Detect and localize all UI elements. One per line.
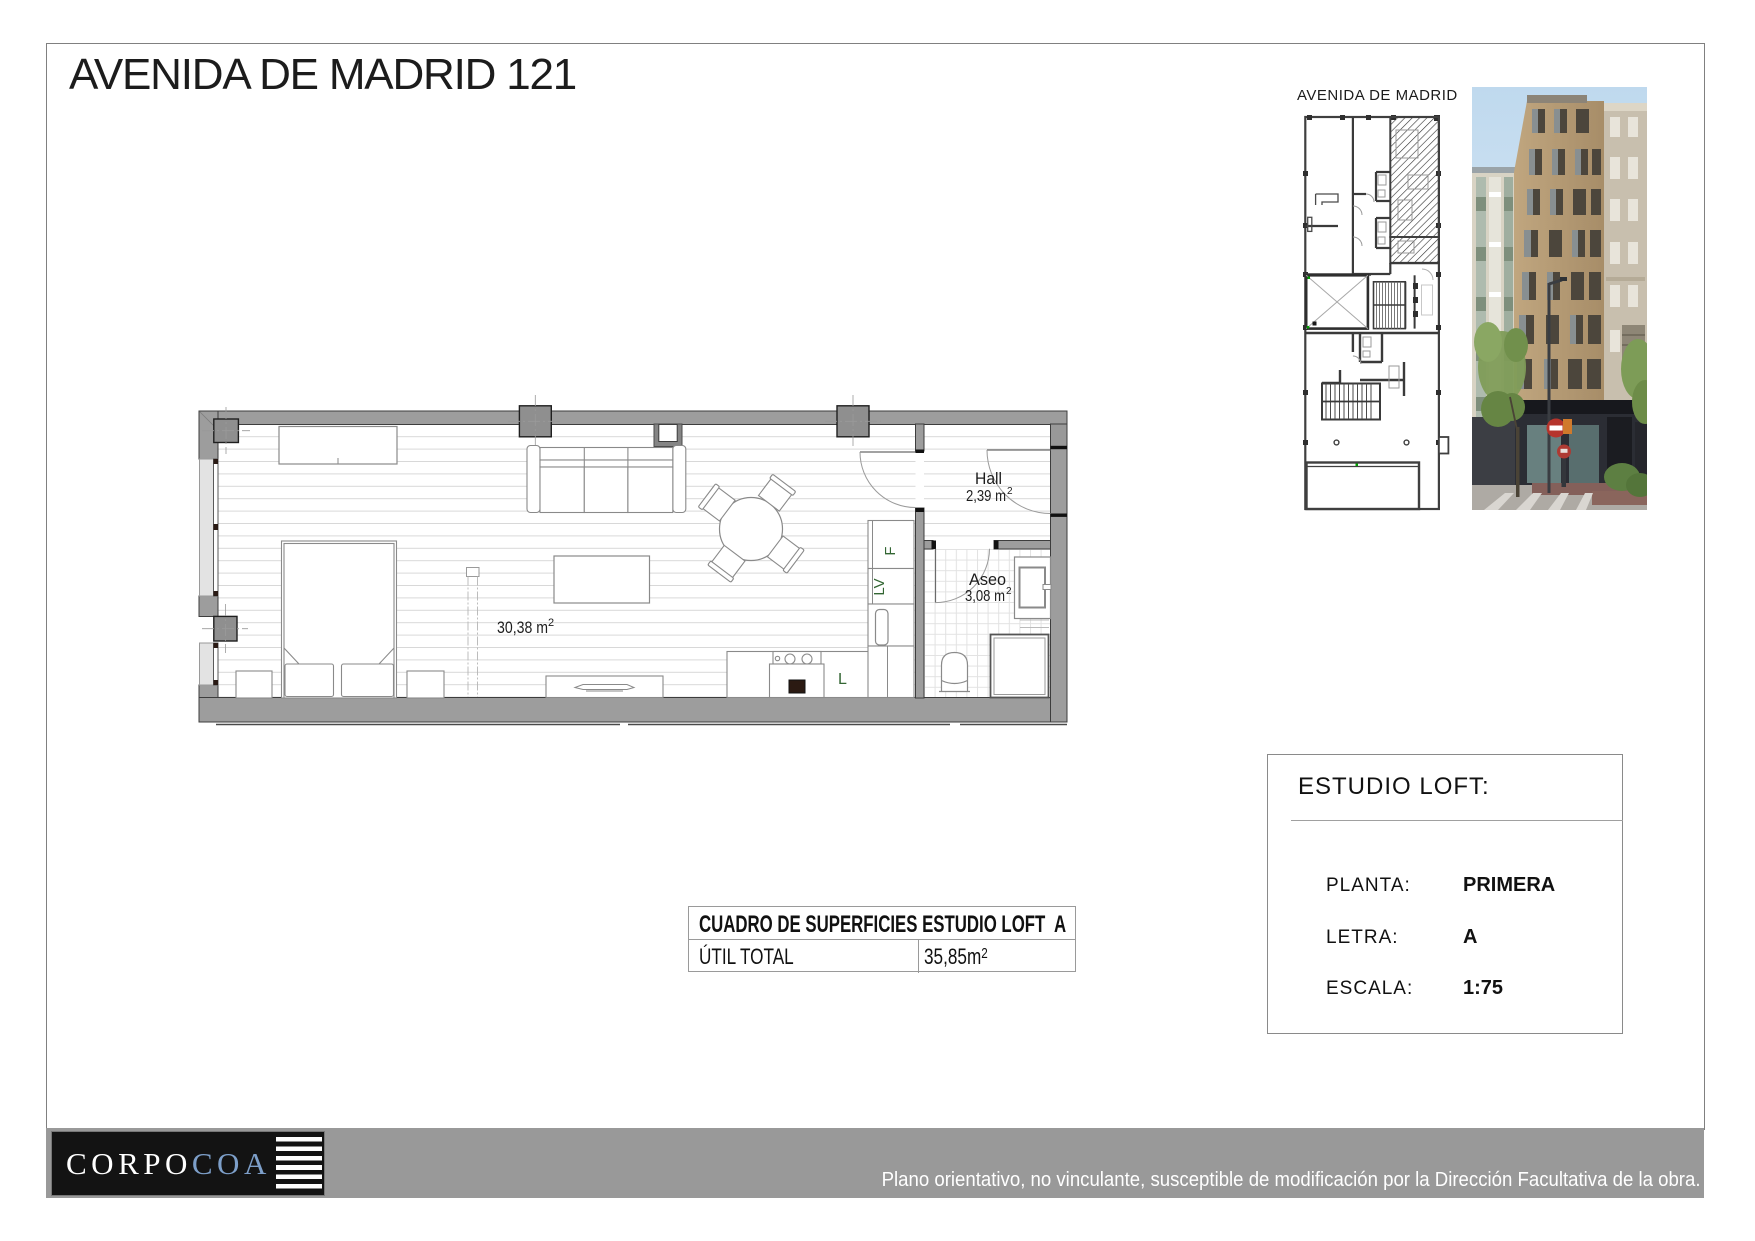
svg-text:2: 2: [1007, 486, 1013, 497]
svg-text:LV: LV: [871, 578, 888, 595]
svg-text:30,38 m: 30,38 m: [497, 618, 548, 637]
svg-text:L: L: [838, 671, 847, 688]
svg-text:Hall: Hall: [975, 470, 1002, 488]
svg-text:F: F: [882, 546, 899, 555]
svg-text:2: 2: [548, 617, 554, 629]
svg-text:Aseo: Aseo: [969, 571, 1006, 589]
svg-text:2: 2: [1006, 586, 1012, 597]
svg-text:3,08 m: 3,08 m: [965, 588, 1005, 605]
svg-text:2,39 m: 2,39 m: [966, 488, 1006, 505]
